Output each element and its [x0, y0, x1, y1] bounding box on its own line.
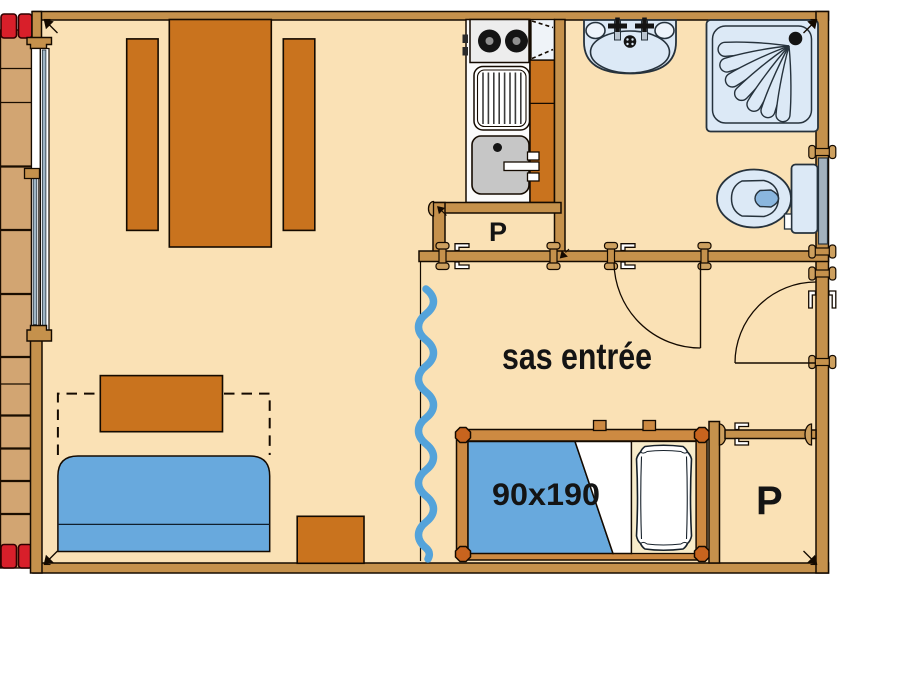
svg-text:P: P: [756, 479, 783, 523]
svg-text:90x190: 90x190: [492, 476, 600, 512]
svg-text:sas entrée: sas entrée: [502, 336, 652, 377]
svg-text:P: P: [489, 217, 507, 247]
